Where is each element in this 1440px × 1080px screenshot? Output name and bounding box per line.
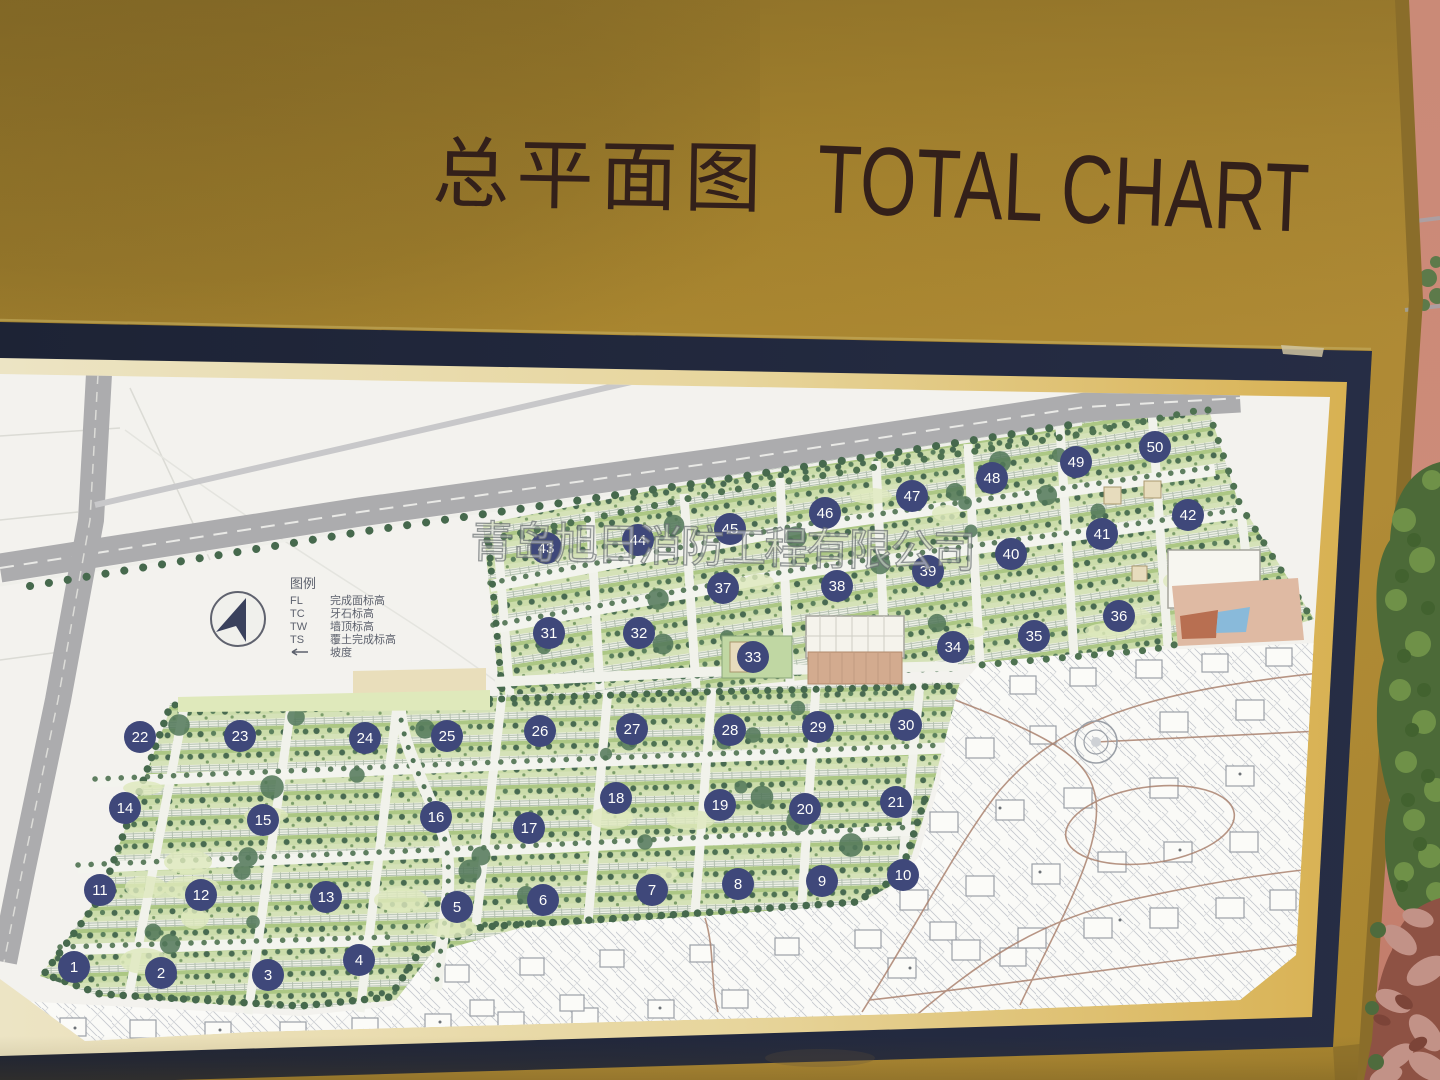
svg-text:TOTAL CHART: TOTAL CHART — [815, 124, 1311, 253]
svg-text:总平面图: 总平面图 — [432, 131, 769, 223]
